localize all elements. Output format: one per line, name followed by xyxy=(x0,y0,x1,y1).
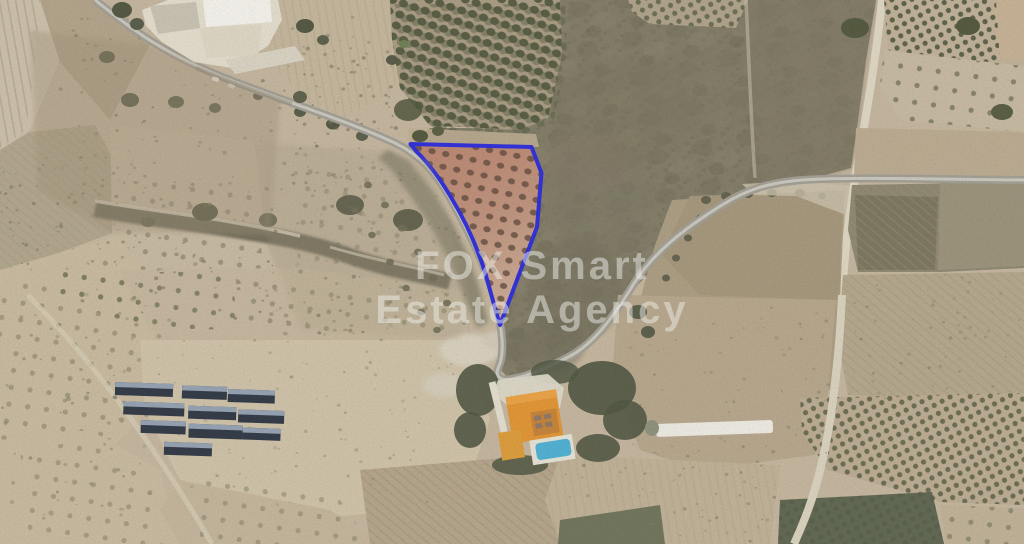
svg-text:Estate Agency: Estate Agency xyxy=(375,288,688,332)
svg-text:FOX Smart: FOX Smart xyxy=(415,244,649,288)
